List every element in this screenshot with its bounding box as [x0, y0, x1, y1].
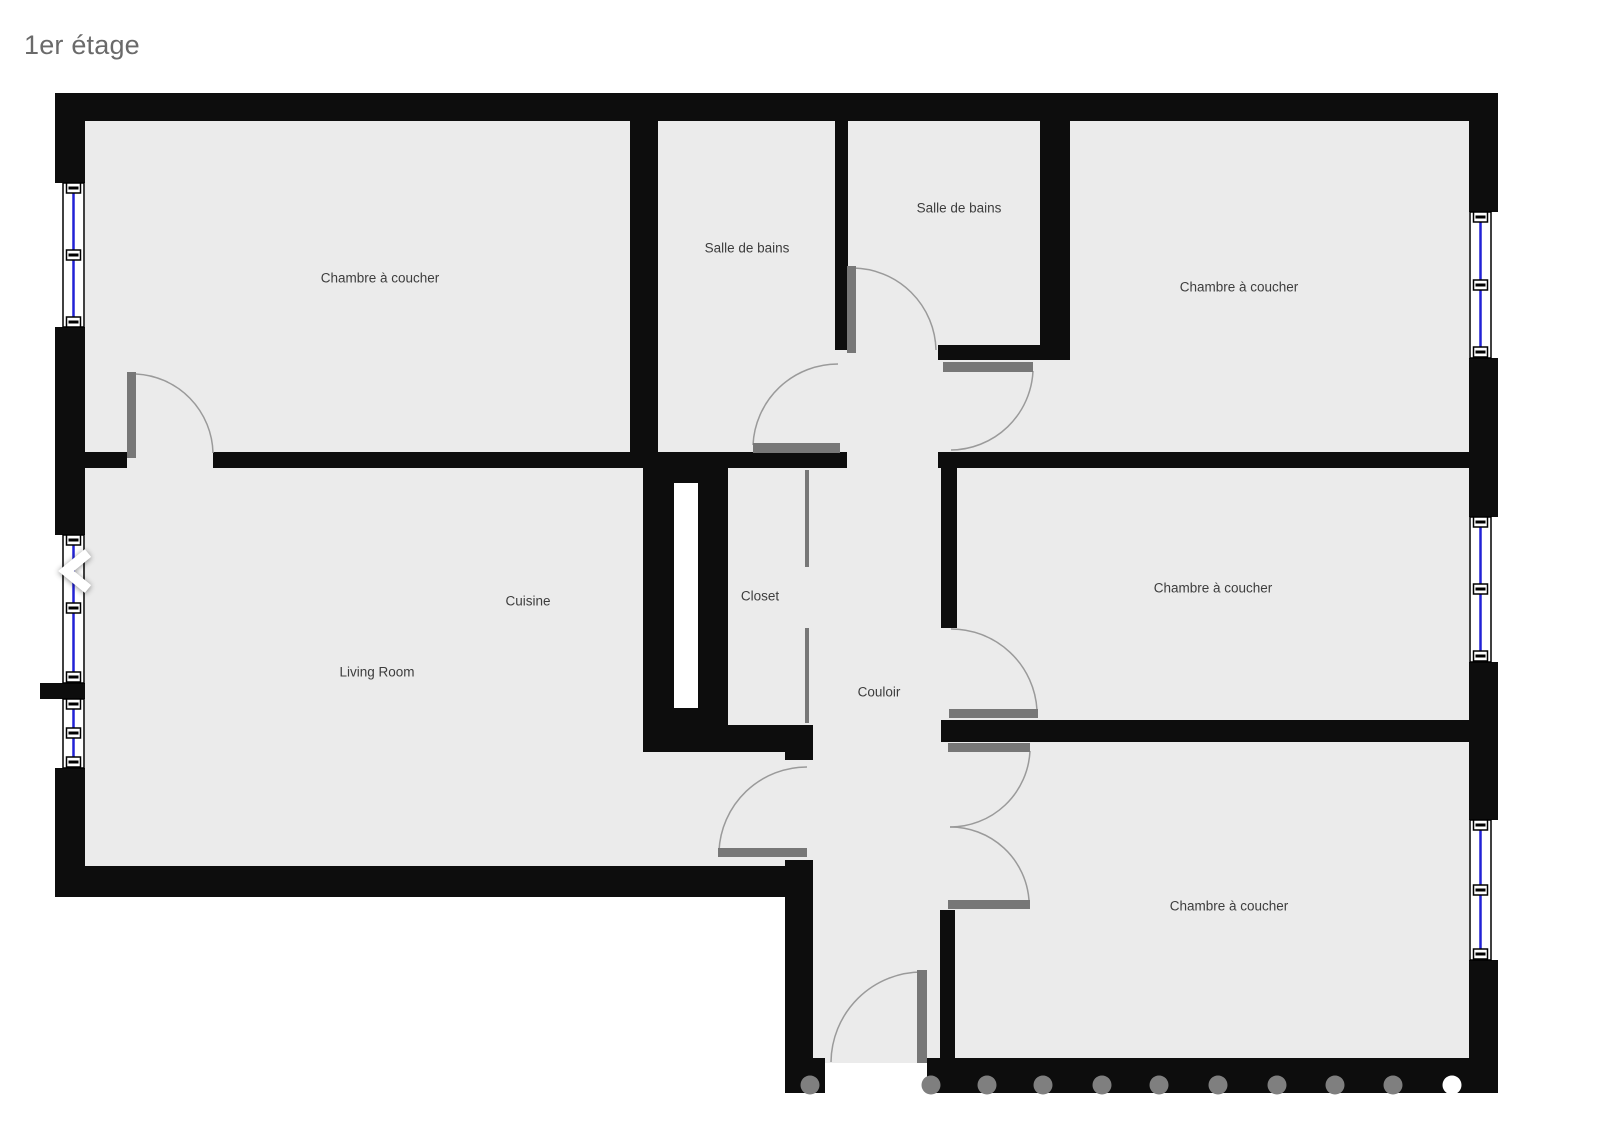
room-label-bedroom-bottom-right: Chambre à coucher [1170, 899, 1289, 914]
sliding-door-panel [805, 470, 809, 567]
prev-button[interactable] [52, 544, 100, 598]
floorplan-viewer: 1er étage [0, 0, 1600, 1132]
window [63, 183, 84, 327]
door-leaf [948, 900, 1030, 909]
wall-bedroom1-bath1 [630, 121, 658, 452]
sliding-door-panel [805, 628, 809, 723]
wall-bedroomBR-left [940, 910, 955, 1058]
wall-left [55, 121, 85, 183]
window [1470, 212, 1491, 358]
room-label-living-room: Living Room [339, 665, 414, 680]
wall-bath2-bottom [938, 345, 1070, 360]
post-dot [1384, 1076, 1403, 1095]
wall-right [1469, 662, 1498, 820]
door-leaf [127, 372, 136, 458]
post-dot [1209, 1076, 1228, 1095]
wall-left [55, 327, 85, 535]
wall-top [55, 93, 1498, 121]
wall-living-bottom [55, 866, 813, 897]
door-leaf [917, 970, 927, 1063]
door-leaf [949, 709, 1038, 718]
door-leaf [718, 848, 807, 857]
wall-left-window-divider [40, 683, 85, 699]
wall-bath1-bath2 [835, 121, 848, 350]
room-label-couloir: Couloir [858, 685, 901, 700]
room-label-bedroom-middle-right: Chambre à coucher [1154, 581, 1273, 596]
post-dot [1034, 1076, 1053, 1095]
room-label-bedroom-top-right: Chambre à coucher [1180, 280, 1299, 295]
room-label-bathroom-right: Salle de bains [917, 201, 1002, 216]
wall-right [1469, 358, 1498, 517]
closet-interior [674, 483, 698, 708]
room-label-bathroom-left: Salle de bains [705, 241, 790, 256]
window [1470, 820, 1491, 960]
post-dot [1326, 1076, 1345, 1095]
room-label-bedroom-top-left: Chambre à coucher [321, 271, 440, 286]
wall-bedroomMR-left [941, 468, 957, 628]
floor-corridor-bottom [813, 866, 955, 1063]
chevron-left-icon [52, 586, 100, 601]
post-dot [922, 1076, 941, 1095]
door-leaf [948, 743, 1030, 752]
door-leaf [753, 443, 840, 453]
door-leaf [943, 362, 1033, 372]
floor-plan-svg [0, 0, 1600, 1132]
post-dot [978, 1076, 997, 1095]
wall-corridor-left [785, 725, 813, 760]
wall-mid-horizontal [85, 452, 127, 468]
post-dot [1093, 1076, 1112, 1095]
room-label-cuisine: Cuisine [505, 594, 550, 609]
post-dot-highlight [1443, 1076, 1462, 1095]
wall-bedroomMR-top [938, 452, 1469, 468]
window [1470, 517, 1491, 662]
post-dot [1268, 1076, 1287, 1095]
wall-bath2-right [1040, 121, 1070, 360]
window [63, 699, 84, 768]
post-dot [801, 1076, 820, 1095]
post-dot [1150, 1076, 1169, 1095]
room-label-closet: Closet [741, 589, 779, 604]
wall-mid-horizontal [213, 452, 847, 468]
wall-between-right-bedrooms [941, 720, 1469, 742]
wall-right [1469, 121, 1498, 212]
door-leaf [847, 266, 856, 353]
